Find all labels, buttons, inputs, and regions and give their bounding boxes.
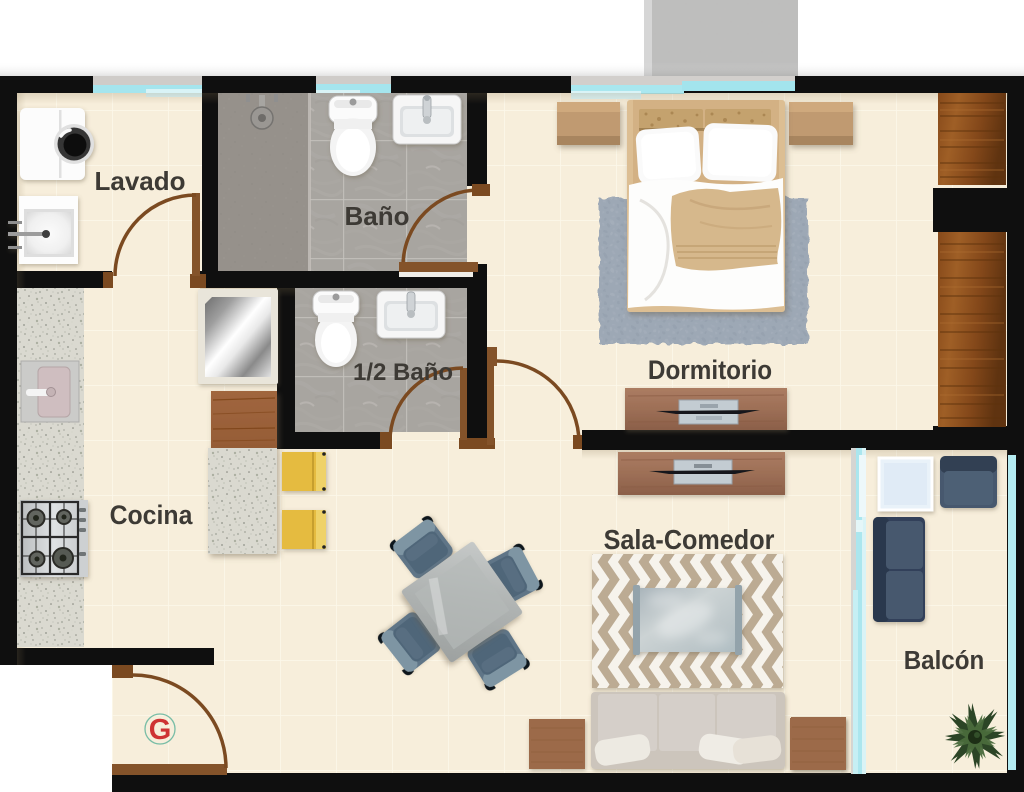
svg-text:Balcón: Balcón <box>904 646 985 675</box>
svg-text:G: G <box>149 714 172 746</box>
svg-text:Sala-Comedor: Sala-Comedor <box>604 524 775 556</box>
svg-text:1/2 Baño: 1/2 Baño <box>353 359 453 386</box>
svg-text:Baño: Baño <box>345 201 410 231</box>
svg-text:Cocina: Cocina <box>110 501 193 530</box>
svg-text:Lavado: Lavado <box>94 166 185 196</box>
svg-text:Dormitorio: Dormitorio <box>648 356 772 385</box>
